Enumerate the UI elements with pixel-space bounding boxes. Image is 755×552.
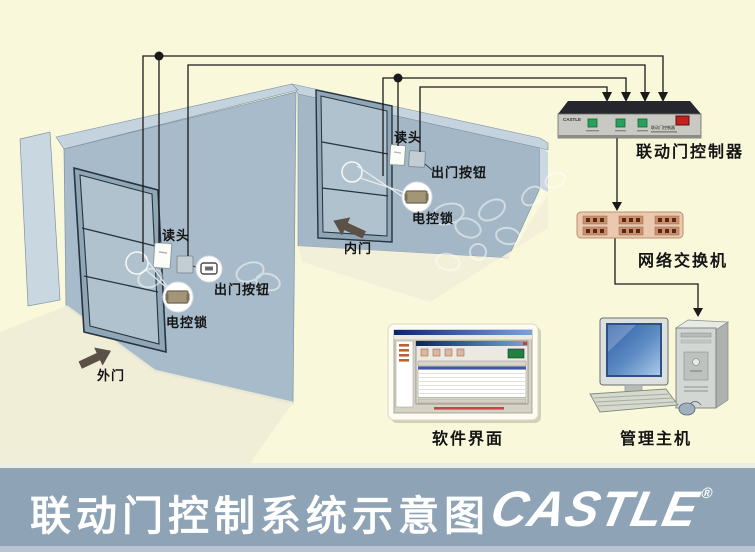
red-caption-line xyxy=(434,407,504,410)
software-label: 软件界面 xyxy=(432,429,504,448)
junction-dot-outer xyxy=(155,52,164,61)
outer-door xyxy=(74,168,166,352)
controller-button-2 xyxy=(616,119,625,127)
controller-label: 联动门控制器 xyxy=(636,142,744,161)
outer-door-label: 外门 xyxy=(96,368,125,383)
banner-footer-strip xyxy=(0,546,755,552)
management-host xyxy=(590,318,728,415)
outer-card-reader xyxy=(153,242,172,268)
network-switch xyxy=(577,212,683,238)
switch-label: 网络交换机 xyxy=(638,251,728,270)
inner-exit-button xyxy=(408,150,425,167)
outer-lock-label: 电控锁 xyxy=(166,315,208,330)
app-title-bar xyxy=(394,330,532,335)
logo-text: CASTLE xyxy=(486,481,704,537)
inner-reader-label: 读头 xyxy=(394,130,422,145)
outer-electric-lock xyxy=(167,291,188,303)
controller-power-switch xyxy=(676,116,689,125)
interlock-controller: CASTLE 联动门控制器 xyxy=(558,101,701,138)
green-button xyxy=(508,349,524,358)
outer-reader-label: 读头 xyxy=(162,228,190,243)
mouse xyxy=(679,403,695,415)
inner-door xyxy=(316,90,392,242)
page-title: 联动门控制系统示意图 xyxy=(30,482,490,542)
system-diagram: CASTLE 联动门控制器 联动门控制器 网络交 xyxy=(0,0,755,463)
castle-logo: CASTLE® xyxy=(486,480,715,538)
controller-device-text: 联动门控制器 xyxy=(651,124,675,130)
junction-dot-inner xyxy=(394,74,403,83)
controller-brand-text: CASTLE xyxy=(563,117,581,122)
controller-top xyxy=(558,101,701,114)
controller-button-3 xyxy=(638,119,647,127)
controller-button-1 xyxy=(588,119,597,127)
inner-exit-button-label: 出门按钮 xyxy=(431,165,487,180)
screenshot-root: CASTLE 联动门控制器 联动门控制器 网络交 xyxy=(0,0,755,552)
inner-electric-lock xyxy=(406,191,427,203)
tower-side xyxy=(716,322,728,408)
software-screenshot xyxy=(388,324,541,423)
outer-exit-button xyxy=(177,256,193,273)
inner-card-reader xyxy=(389,145,405,166)
child-title-bar xyxy=(416,341,528,346)
inner-door-label: 内门 xyxy=(344,241,372,256)
tower-power-button xyxy=(693,359,700,366)
inner-lock-label: 电控锁 xyxy=(412,211,454,226)
host-label: 管理主机 xyxy=(620,429,692,448)
outer-exit-button-label: 出门按钮 xyxy=(214,282,270,297)
